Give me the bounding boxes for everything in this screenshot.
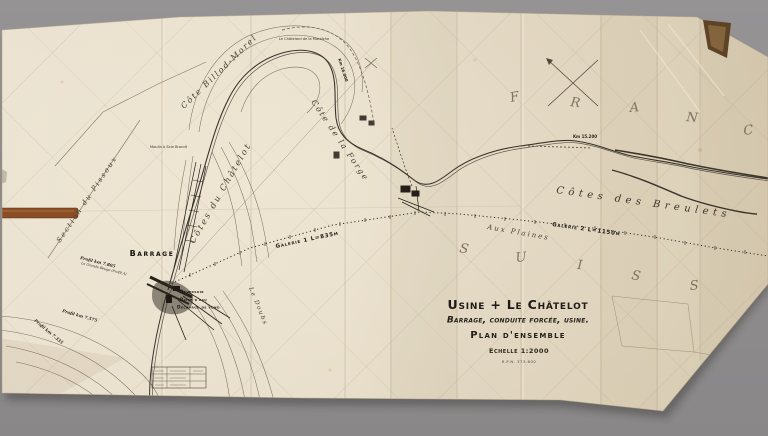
plan-densemble-map: Usine + Le Châtelot Barrage, conduite fo… [0,0,768,436]
plan-label: Plan d'ensemble [470,330,565,341]
label-deversoir: Déversoir [180,289,204,294]
scale-label: Echelle 1:2000 [489,347,549,355]
tape-repair [0,208,78,218]
page-title: Usine + Le Châtelot [448,297,589,312]
france-letter-n: N [685,110,699,126]
label-prise-deau: Prise d'eau [180,297,207,302]
suisse-letter-s3: S [689,278,699,294]
survey-grid [0,0,768,436]
france-letter-a: A [628,100,640,116]
subtitle: Barrage, conduite forcée, usine. [447,316,589,326]
label-km-15200: Km 15.200 [573,134,597,139]
label-barrage: Barrage [130,249,175,258]
map-photo: Usine + Le Châtelot Barrage, conduite fo… [0,0,768,436]
reference-number: R.P.N. 373.600 [502,359,537,364]
label-decharge-de-fond: Decharge de fond [177,305,220,310]
france-letter-c: C [742,123,754,139]
label-chatelard: Le Châtelard de la Maraîche [279,37,330,41]
label-moulin: Moulin à Scie Brandt [150,145,188,149]
